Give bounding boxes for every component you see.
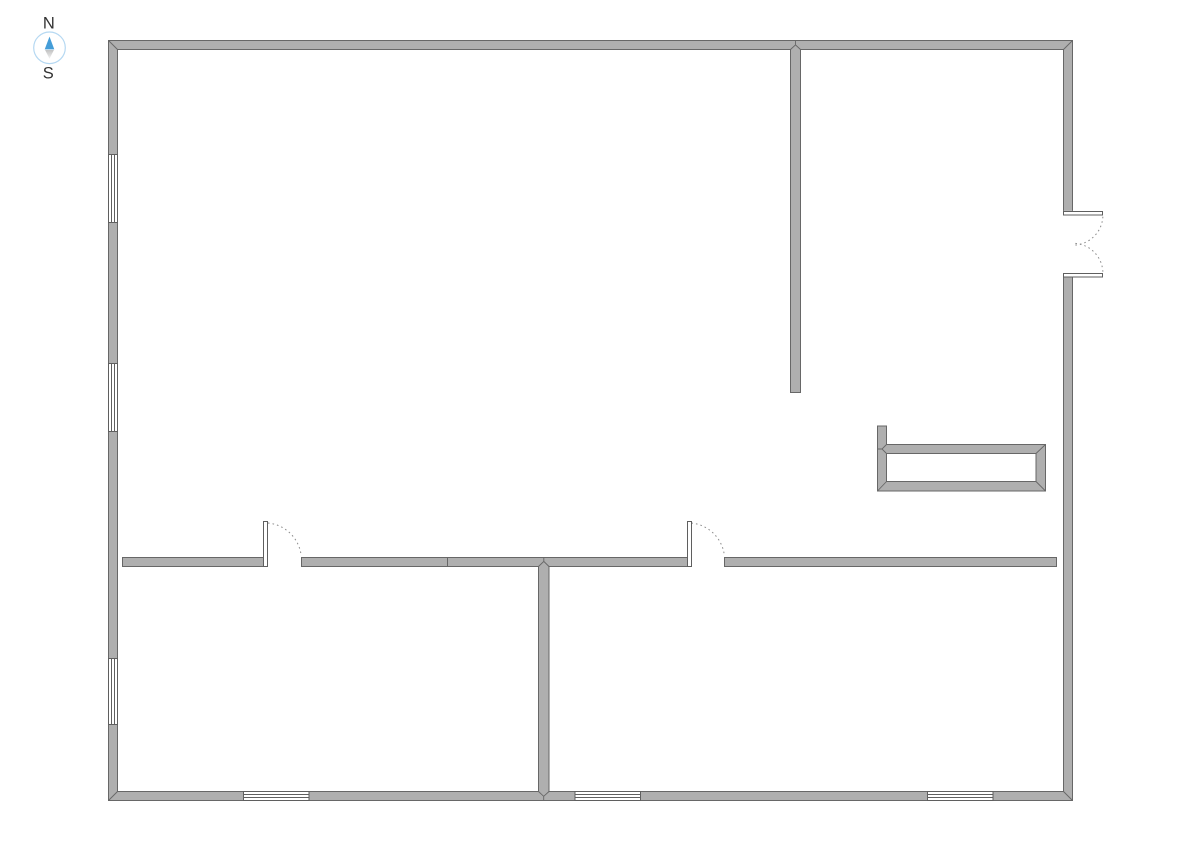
svg-text:S: S: [43, 65, 54, 83]
svg-text:N: N: [43, 15, 55, 33]
